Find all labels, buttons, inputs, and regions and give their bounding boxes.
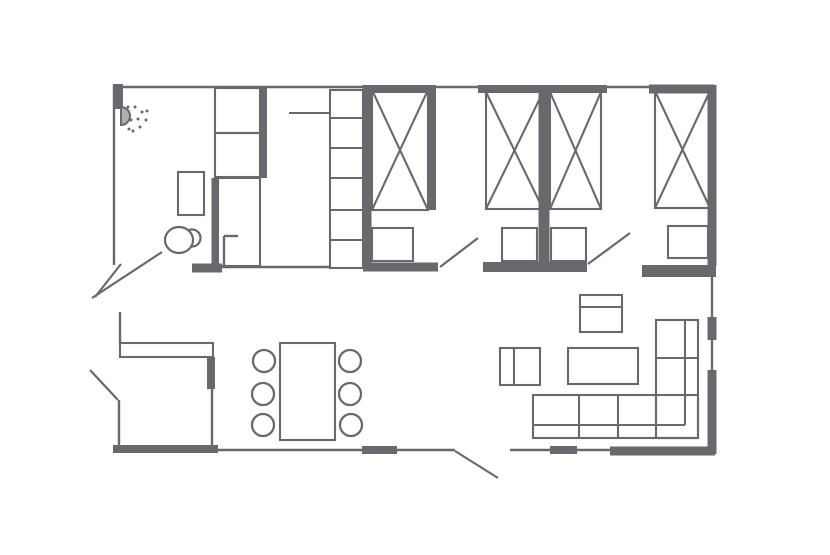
dining-chair-6 <box>340 414 362 436</box>
shower-spray-dot-5 <box>132 130 135 133</box>
nightstand-4 <box>668 226 708 258</box>
dining-chair-4 <box>339 350 361 372</box>
bathroom-sink <box>178 172 204 215</box>
coffee-table <box>568 348 638 384</box>
shower-head-icon <box>121 107 130 125</box>
furniture-lines <box>289 113 698 438</box>
bedroom2-door-swing <box>440 238 478 267</box>
bed-3 <box>550 92 601 209</box>
shower-spray-dot-7 <box>137 118 140 121</box>
closet-lower-shelf <box>215 133 260 177</box>
bed-4 <box>655 91 710 208</box>
side-door-swing <box>90 370 118 400</box>
sofa-long-section <box>533 395 698 438</box>
shower-spray-dot-2 <box>141 111 144 114</box>
shower-spray-dot-9 <box>146 110 149 113</box>
shower-fixture <box>121 106 149 133</box>
bed-2 <box>486 92 543 209</box>
dining-chair-3 <box>252 414 274 436</box>
nightstand-2 <box>502 228 537 261</box>
dining-table <box>280 343 335 440</box>
armchair <box>500 348 540 385</box>
toilet-bowl <box>165 227 193 253</box>
shower-spray-dot-10 <box>128 128 131 131</box>
nightstand-1 <box>372 228 413 261</box>
floor-plan-canvas <box>0 0 830 555</box>
entry-door-swing-a <box>92 252 162 298</box>
shower-spray-dot-3 <box>145 119 148 122</box>
tv-cabinet <box>580 295 622 332</box>
nightstand-3 <box>551 228 586 261</box>
bedroom3-door-swing <box>588 233 630 264</box>
floor-plan-page <box>0 0 830 555</box>
shower-spray-dot-4 <box>139 126 142 129</box>
walls-thick <box>113 84 716 454</box>
shower-spray-dot-1 <box>134 106 137 109</box>
dining-chair-2 <box>252 383 274 405</box>
terrace-door-swing <box>455 451 498 478</box>
shower-spray-dot-8 <box>127 106 130 109</box>
bed-1 <box>372 90 428 210</box>
shower-spray-dot-6 <box>130 119 133 122</box>
dining-chair-1 <box>253 350 275 372</box>
kitchen-counter <box>120 343 213 357</box>
dining-chair-5 <box>339 383 361 405</box>
furniture-circles <box>165 227 362 436</box>
closet-upper-shelf <box>215 88 260 133</box>
sofa-short-section <box>656 320 698 438</box>
